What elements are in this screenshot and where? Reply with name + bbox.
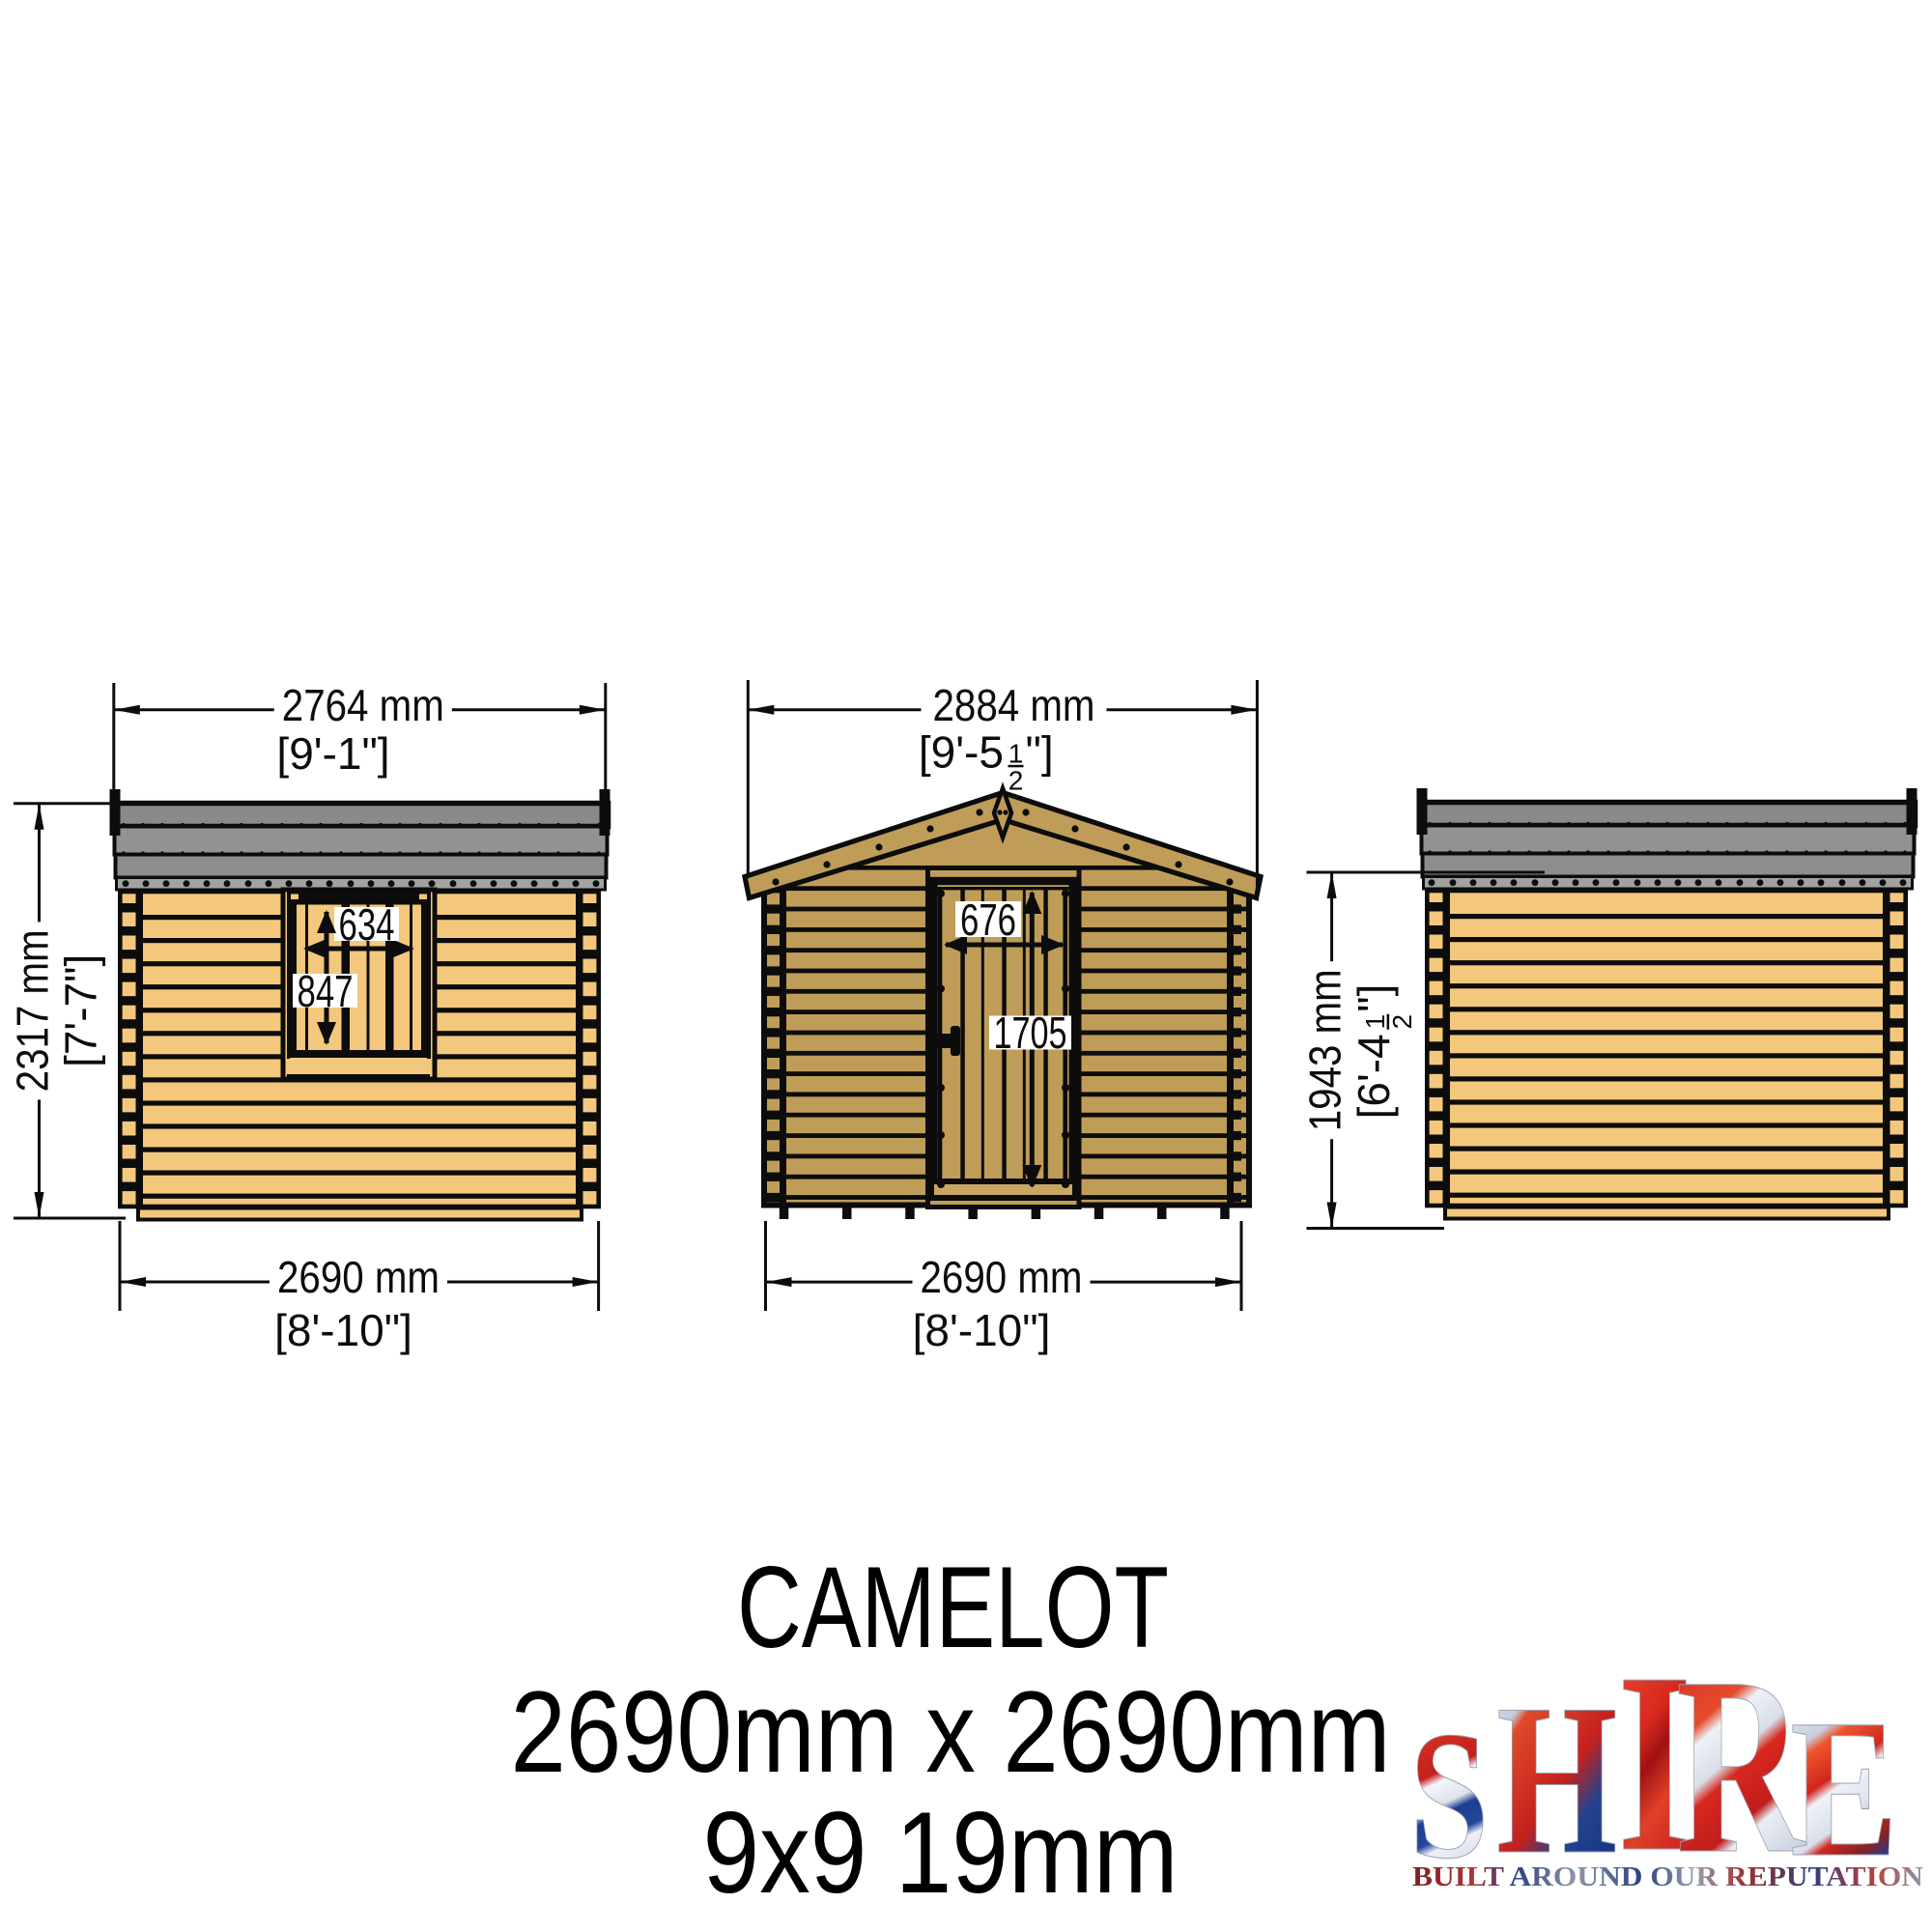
svg-text:2764 mm: 2764 mm — [282, 680, 444, 730]
svg-text:1: 1 — [1009, 738, 1024, 768]
svg-text:2: 2 — [1387, 1014, 1417, 1030]
svg-text:2: 2 — [1009, 765, 1024, 795]
svg-text:CAMELOT: CAMELOT — [737, 1543, 1169, 1672]
svg-text:1: 1 — [1360, 1014, 1390, 1030]
svg-text:[8'-10"]: [8'-10"] — [913, 1305, 1051, 1355]
svg-text:2884 mm: 2884 mm — [933, 680, 1095, 730]
svg-text:2690 mm: 2690 mm — [921, 1252, 1083, 1302]
svg-text:[7'-7"]: [7'-7"] — [56, 954, 106, 1067]
svg-text:634: 634 — [339, 899, 395, 950]
svg-text:[9'-1"]: [9'-1"] — [276, 728, 389, 779]
svg-text:[8'-10"]: [8'-10"] — [274, 1305, 412, 1355]
svg-text:"]: "] — [1349, 984, 1399, 1012]
svg-text:1705: 1705 — [994, 1008, 1067, 1058]
svg-text:1943 mm: 1943 mm — [1300, 969, 1350, 1131]
svg-text:847: 847 — [298, 966, 354, 1016]
svg-text:2690mm x 2690mm: 2690mm x 2690mm — [511, 1667, 1391, 1797]
svg-text:[9'-5: [9'-5 — [919, 726, 1004, 777]
svg-text:2317 mm: 2317 mm — [8, 929, 58, 1092]
svg-text:2690 mm: 2690 mm — [277, 1252, 440, 1302]
svg-text:9x9 19mm: 9x9 19mm — [703, 1788, 1179, 1918]
svg-text:[6'-4: [6'-4 — [1349, 1034, 1399, 1119]
svg-text:BUILT AROUND OUR REPUTATION: BUILT AROUND OUR REPUTATION — [1412, 1862, 1923, 1892]
svg-text:676: 676 — [960, 895, 1016, 945]
svg-text:"]: "] — [1026, 726, 1054, 777]
